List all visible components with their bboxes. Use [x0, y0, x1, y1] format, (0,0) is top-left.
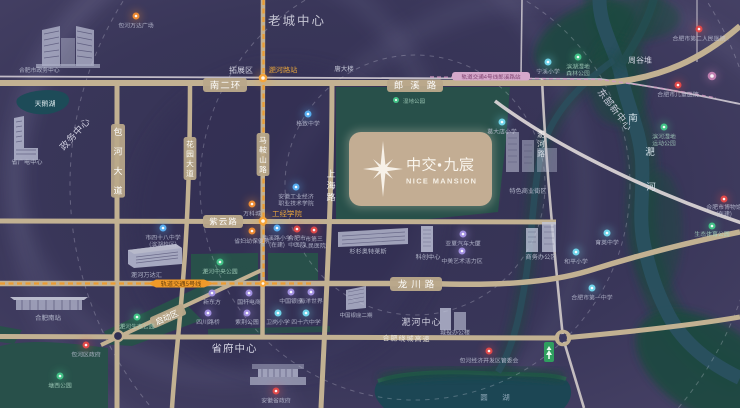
svg-text:NICE MANSION: NICE MANSION	[406, 177, 477, 186]
